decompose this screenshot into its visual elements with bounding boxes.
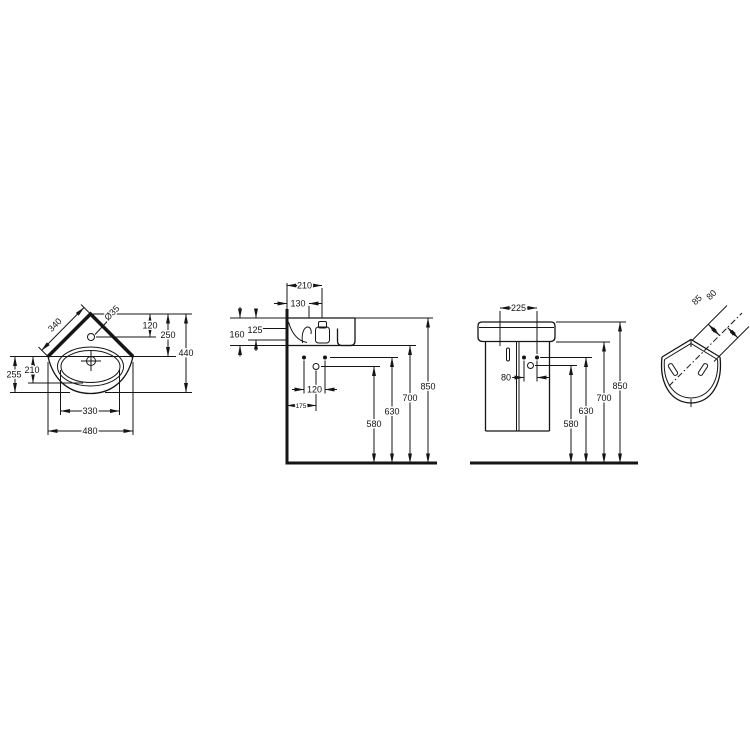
- corner-dimensions: 85 80: [690, 288, 738, 338]
- corner-bowl-inner: [664, 360, 717, 399]
- dim-label-side-160: 160: [229, 330, 244, 340]
- dim-label-side-175: 175: [296, 403, 307, 410]
- dim-line-85: [709, 325, 720, 336]
- plan-tap-hole: [88, 334, 95, 341]
- dim-label-side-850: 850: [420, 382, 435, 392]
- plan-view: 340 Ø35 120 250 440 255 210 330 480: [6, 303, 193, 436]
- bowl-curve: [289, 322, 308, 343]
- trap-outlet: [313, 364, 319, 370]
- basin-front-lip: [338, 318, 356, 346]
- fixing-tab: [668, 363, 679, 376]
- basin-body: [478, 322, 555, 342]
- dim-label-front-580: 580: [563, 419, 578, 429]
- front-basin: [478, 322, 555, 342]
- dim-line-80c: [728, 328, 739, 339]
- fixing-tab: [698, 363, 709, 376]
- fixing-hole-dot: [323, 356, 327, 360]
- dim-label-plan-250: 250: [160, 330, 175, 340]
- dim-label-side-580: 580: [366, 419, 381, 429]
- fixing-hole-dot: [302, 356, 306, 360]
- dim-label-side-700: 700: [402, 393, 417, 403]
- corner-basin-outline: [662, 340, 721, 408]
- dim-label-side-210: 210: [297, 281, 312, 291]
- fixing-hole-dot: [535, 356, 539, 360]
- dim-label-plan-330: 330: [82, 406, 97, 416]
- dim-label-plan-480: 480: [82, 426, 97, 436]
- dim-label-corner-80: 80: [704, 288, 718, 302]
- corner-view: 85 80: [662, 288, 749, 407]
- dim-label-side-630: 630: [384, 407, 399, 417]
- side-dimensions: 210 130 160 125 120 175 580 630 700 850: [229, 281, 435, 464]
- dim-label-plan-dia35: Ø35: [102, 303, 121, 322]
- plan-drain: [81, 351, 101, 371]
- dim-label-front-80: 80: [501, 373, 511, 383]
- dim-label-plan-440: 440: [178, 348, 193, 358]
- dim-label-front-630: 630: [578, 406, 593, 416]
- front-view: 225 80 580 630 700 850: [470, 303, 638, 463]
- dim-label-front-225: 225: [511, 303, 526, 313]
- dim-label-corner-85: 85: [690, 293, 704, 307]
- dim-label-front-850: 850: [612, 381, 627, 391]
- dim-label-side-130: 130: [290, 299, 305, 309]
- front-cabinet: [486, 342, 550, 432]
- door-handle-slot: [507, 348, 510, 361]
- technical-drawing: 340 Ø35 120 250 440 255 210 330 480: [0, 0, 750, 750]
- dim-label-side-120: 120: [307, 385, 322, 395]
- dim-label-side-125: 125: [247, 325, 262, 335]
- side-view: 210 130 160 125 120 175 580 630 700 850: [229, 281, 437, 464]
- dim-label-front-700: 700: [596, 393, 611, 403]
- dim-label-plan-255: 255: [6, 370, 21, 380]
- overflow-section: [302, 327, 311, 343]
- fixing-hole-dot: [522, 356, 526, 360]
- tap-boss: [316, 327, 330, 343]
- dim-label-plan-210: 210: [24, 365, 39, 375]
- side-basin-section: [288, 318, 433, 370]
- dim-label-plan-120: 120: [142, 321, 157, 331]
- trap-outlet: [528, 363, 534, 369]
- front-fittings: [522, 356, 539, 369]
- side-wall-and-floor: [286, 283, 438, 463]
